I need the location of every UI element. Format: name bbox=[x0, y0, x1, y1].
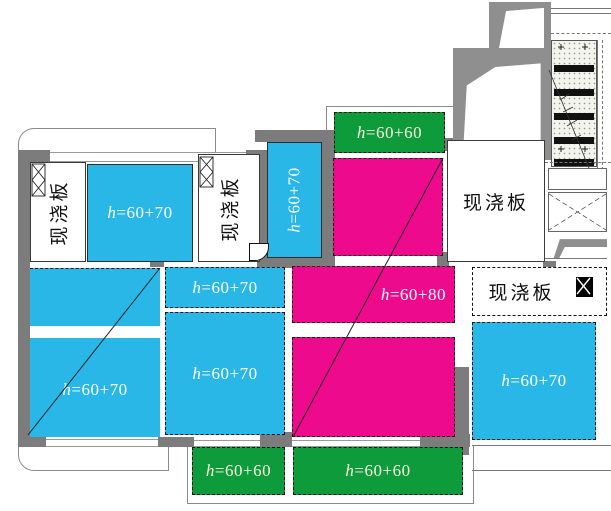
stairwell-upper-box bbox=[489, 2, 551, 52]
cast-in-place-label: 现浇板 bbox=[488, 278, 554, 305]
slab-mid-lower: h=60+70 bbox=[165, 312, 285, 435]
cast-in-place-label: 现浇板 bbox=[463, 188, 529, 215]
wall-segment bbox=[158, 437, 194, 447]
cast-in-place-label: 现浇板 bbox=[216, 175, 243, 241]
slab-height-label: h=60+70 bbox=[192, 364, 257, 384]
slab-mid-upper: h=60+70 bbox=[165, 267, 285, 308]
room-cast-top-left: 现浇板 bbox=[30, 162, 86, 262]
stair-hatch-strip bbox=[551, 40, 597, 167]
slab-height-label: h=60+80 bbox=[381, 285, 446, 305]
slab-magenta-upper bbox=[333, 158, 443, 256]
slab-right-lower: h=60+70 bbox=[472, 322, 596, 440]
edge-dashed-line bbox=[551, 33, 611, 34]
stair-ramp-shape bbox=[545, 235, 607, 258]
slab-top-left: h=60+70 bbox=[87, 164, 193, 262]
window-segment bbox=[292, 440, 420, 447]
cast-in-place-label: 现浇板 bbox=[45, 179, 72, 245]
window-segment bbox=[46, 439, 158, 447]
hatch-bar bbox=[554, 65, 594, 72]
slab-height-label: h=60+60 bbox=[206, 461, 271, 481]
room-cast-right: 现浇板 bbox=[447, 140, 545, 262]
stair-landing-shape bbox=[495, 7, 545, 48]
balcony-outline-top-mid-h bbox=[326, 106, 454, 107]
hatch-bar bbox=[554, 89, 594, 96]
edge-line bbox=[551, 8, 611, 9]
room-cast-right-lower: 现浇板 bbox=[472, 267, 607, 316]
shaft-black-icon bbox=[576, 277, 593, 297]
edge-line bbox=[472, 445, 611, 446]
wall-segment-left bbox=[18, 163, 30, 438]
wall-segment bbox=[18, 437, 46, 447]
slab-height-label: h=60+70 bbox=[107, 203, 172, 223]
floor-plan-drawing: 现浇板 现浇板 现浇板 现浇板 h=60+70 h=60+70 h=60+60 … bbox=[0, 0, 611, 511]
hatch-bar bbox=[554, 137, 594, 144]
slab-height-label: h=60+60 bbox=[345, 461, 410, 481]
landing-outline-box bbox=[548, 168, 607, 190]
slab-magenta-mid: h=60+80 bbox=[292, 266, 455, 323]
hatch-bar bbox=[554, 113, 594, 120]
edge-line bbox=[551, 13, 611, 14]
slab-green-top: h=60+60 bbox=[334, 112, 445, 153]
slab-height-label: h=60+70 bbox=[30, 380, 160, 400]
edge-dashed-line bbox=[602, 40, 603, 170]
edge-line bbox=[472, 470, 611, 471]
slab-vertical-strip: h=60+70 bbox=[267, 142, 322, 258]
shaft-cross-box bbox=[548, 192, 607, 232]
edge-line bbox=[545, 258, 607, 259]
slab-height-label: h=60+70 bbox=[192, 278, 257, 298]
beam-gap bbox=[30, 326, 160, 338]
slab-green-bottom-left: h=60+60 bbox=[192, 447, 285, 495]
slab-height-label: h=60+70 bbox=[285, 167, 305, 232]
slab-left-big: h=60+70 bbox=[30, 268, 160, 437]
slab-green-bottom-right: h=60+60 bbox=[293, 447, 463, 495]
edge-dashed-line bbox=[545, 162, 611, 163]
edge-line bbox=[597, 40, 598, 170]
slab-height-label: h=60+70 bbox=[501, 371, 566, 391]
wall-segment bbox=[455, 367, 469, 455]
slab-height-label: h=60+60 bbox=[357, 123, 422, 143]
window-segment bbox=[194, 440, 260, 447]
slab-magenta-lower bbox=[292, 337, 455, 437]
stair-flight-shape bbox=[460, 56, 544, 148]
